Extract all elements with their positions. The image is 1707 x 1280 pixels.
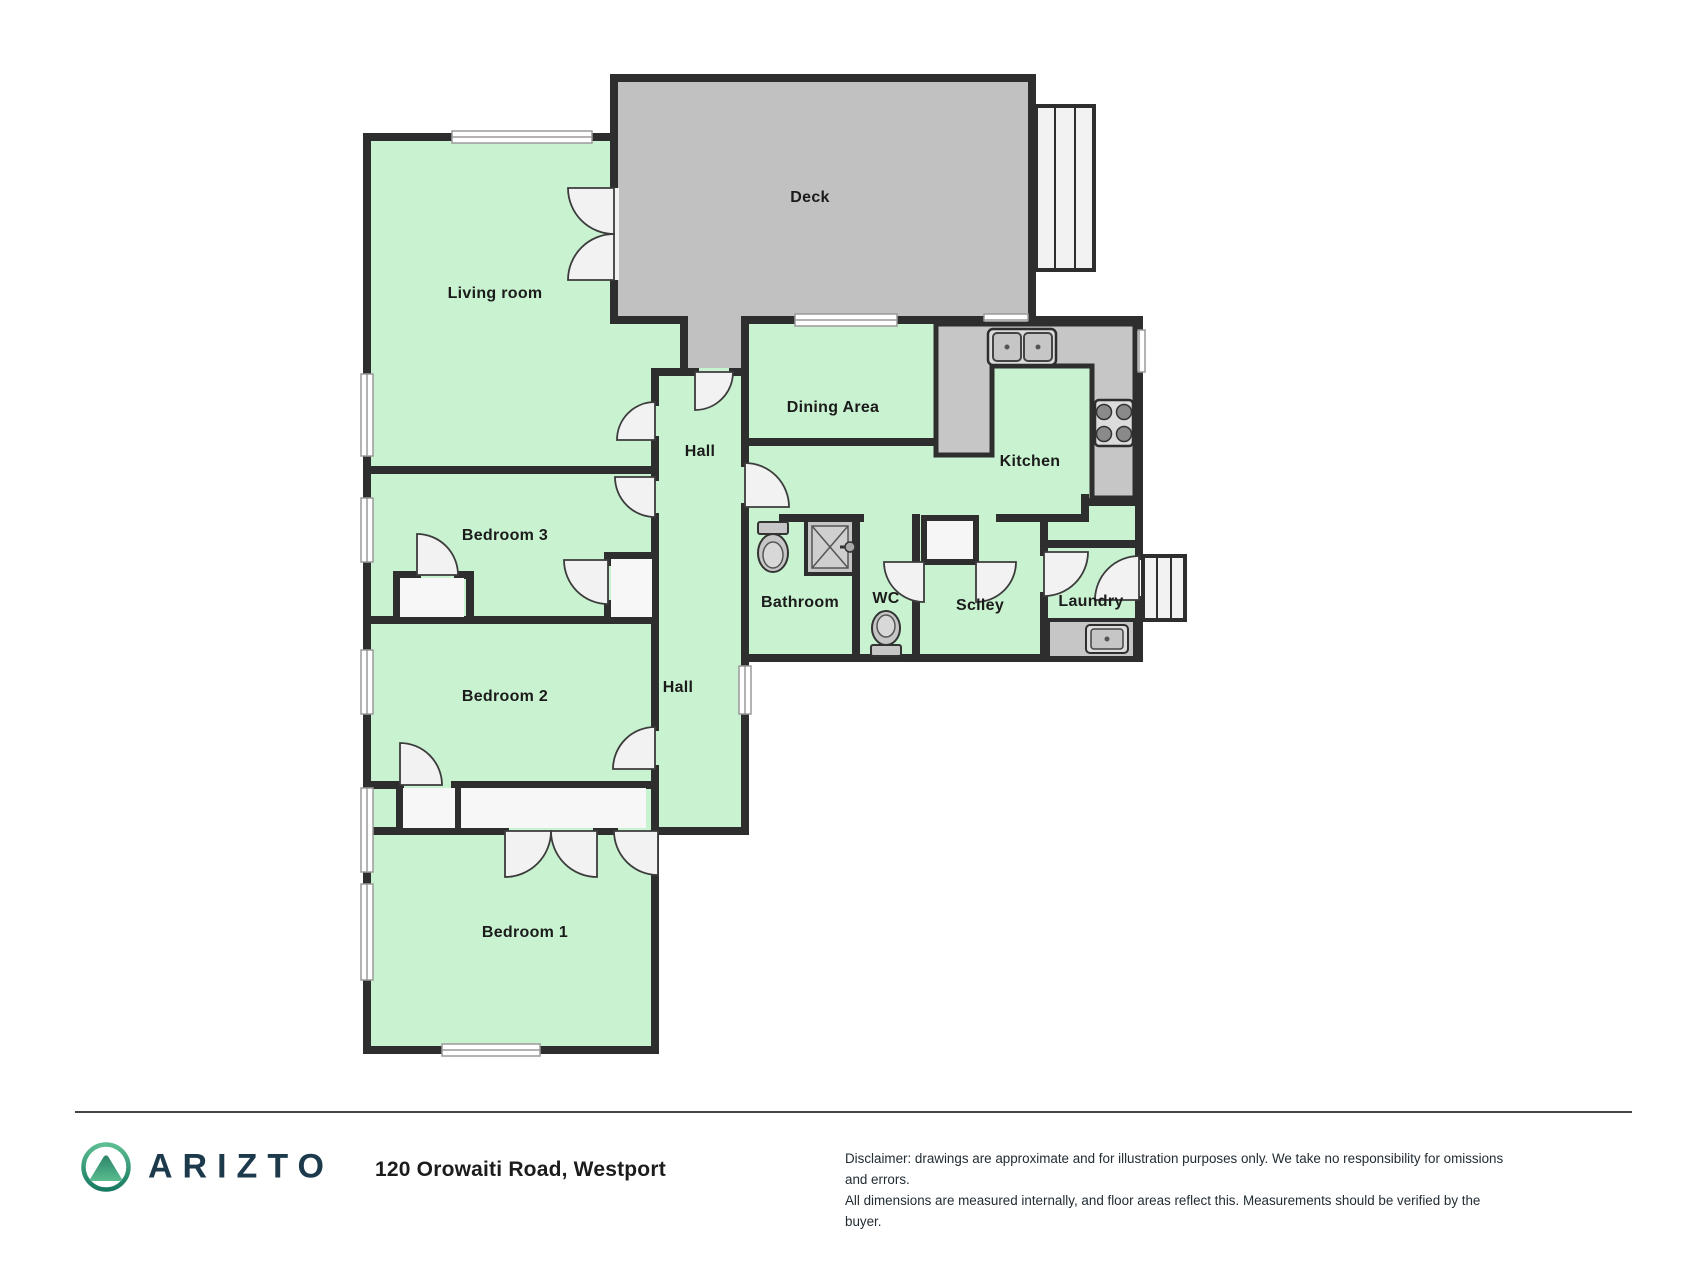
wardrobe [461, 788, 646, 828]
stove-icon [1095, 400, 1133, 446]
room-label-hall-lower: Hall [663, 679, 694, 697]
room-label-bedroom-1: Bedroom 1 [482, 924, 568, 942]
window [739, 666, 751, 714]
room-label-bedroom-3: Bedroom 3 [462, 527, 548, 545]
disclaimer-line-2: All dimensions are measured internally, … [845, 1190, 1505, 1232]
kitchen-sink-icon [988, 329, 1056, 365]
window [361, 498, 373, 562]
toilet-icon [758, 522, 788, 572]
window [361, 788, 373, 872]
closet [611, 559, 652, 617]
window [361, 650, 373, 714]
window [452, 131, 592, 143]
window [442, 1044, 540, 1056]
room-label-kitchen: Kitchen [1000, 453, 1061, 471]
room-label-hall-upper: Hall [685, 443, 716, 461]
room-label-deck: Deck [790, 189, 829, 207]
closet [403, 788, 455, 828]
floor-plan-page: Living room Deck Hall Dining Area Kitche… [0, 0, 1707, 1280]
room-label-bathroom: Bathroom [761, 594, 839, 612]
property-address: 120 Orowaiti Road, Westport [375, 1158, 666, 1182]
hot-water-cupboard [924, 518, 976, 562]
room-label-living-room: Living room [448, 285, 543, 303]
brand-text: ARIZTO [148, 1148, 334, 1187]
deck-stairs-icon [1036, 106, 1094, 270]
floor-plan-svg [0, 0, 1707, 1115]
arizto-logo-icon [80, 1141, 132, 1193]
room-label-bedroom-2: Bedroom 2 [462, 688, 548, 706]
closet [400, 578, 464, 617]
room-label-wc: WC [872, 590, 899, 608]
disclaimer-text: Disclaimer: drawings are approximate and… [845, 1148, 1505, 1232]
shower-icon [806, 520, 855, 574]
footer-divider [75, 1111, 1632, 1113]
disclaimer-line-1: Disclaimer: drawings are approximate and… [845, 1148, 1505, 1190]
window [361, 884, 373, 980]
laundry-sink-icon [1086, 625, 1128, 653]
laundry-steps-icon [1143, 556, 1185, 620]
window [795, 314, 897, 326]
room-label-dining-area: Dining Area [787, 399, 880, 417]
window [361, 374, 373, 456]
room-label-scullery: Sclley [956, 597, 1004, 615]
room-label-laundry: Laundry [1058, 593, 1123, 611]
toilet-icon [871, 611, 901, 656]
